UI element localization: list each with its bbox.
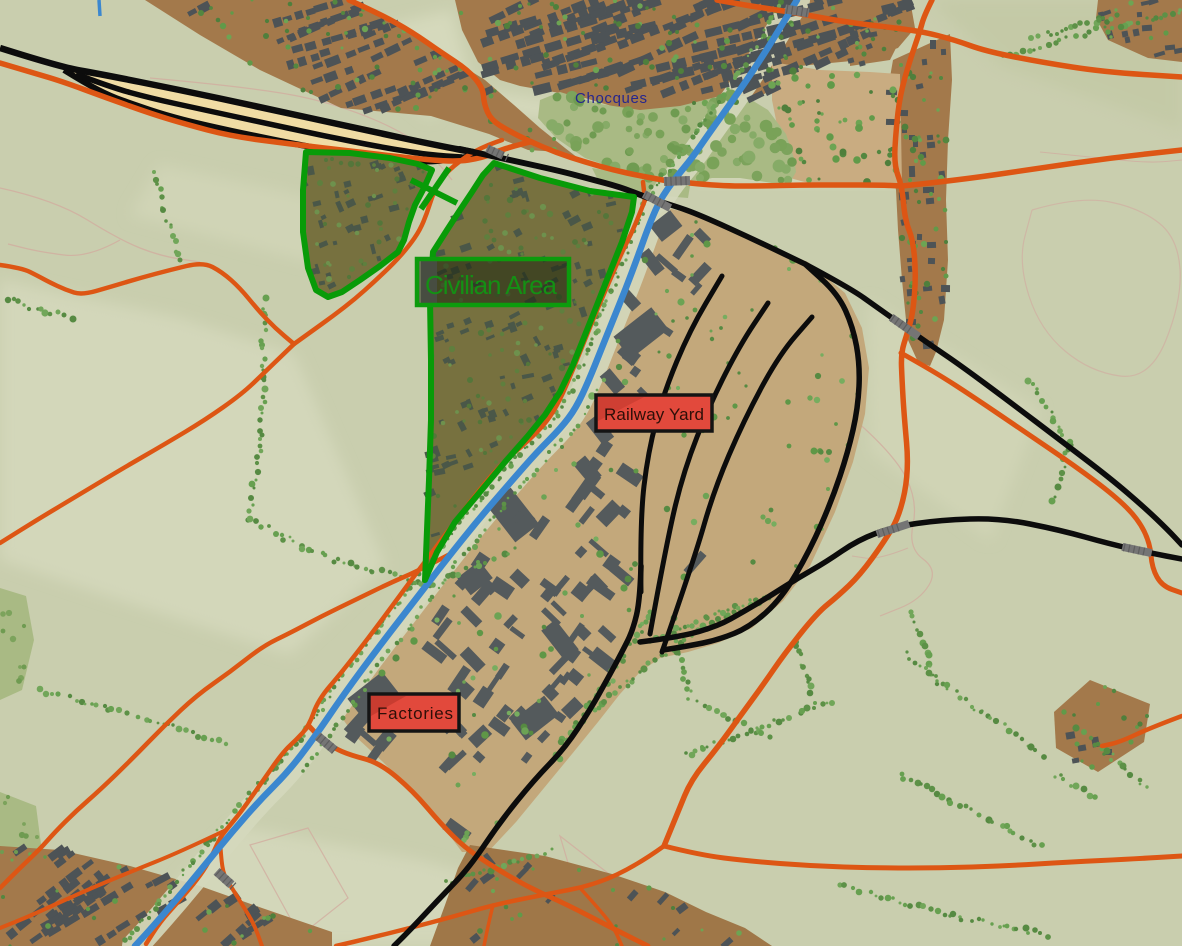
svg-text:Civilian Area: Civilian Area xyxy=(425,270,558,300)
svg-text:Chocques: Chocques xyxy=(575,90,647,107)
svg-text:Railway Yard: Railway Yard xyxy=(604,405,704,424)
svg-text:Factories: Factories xyxy=(377,704,453,723)
